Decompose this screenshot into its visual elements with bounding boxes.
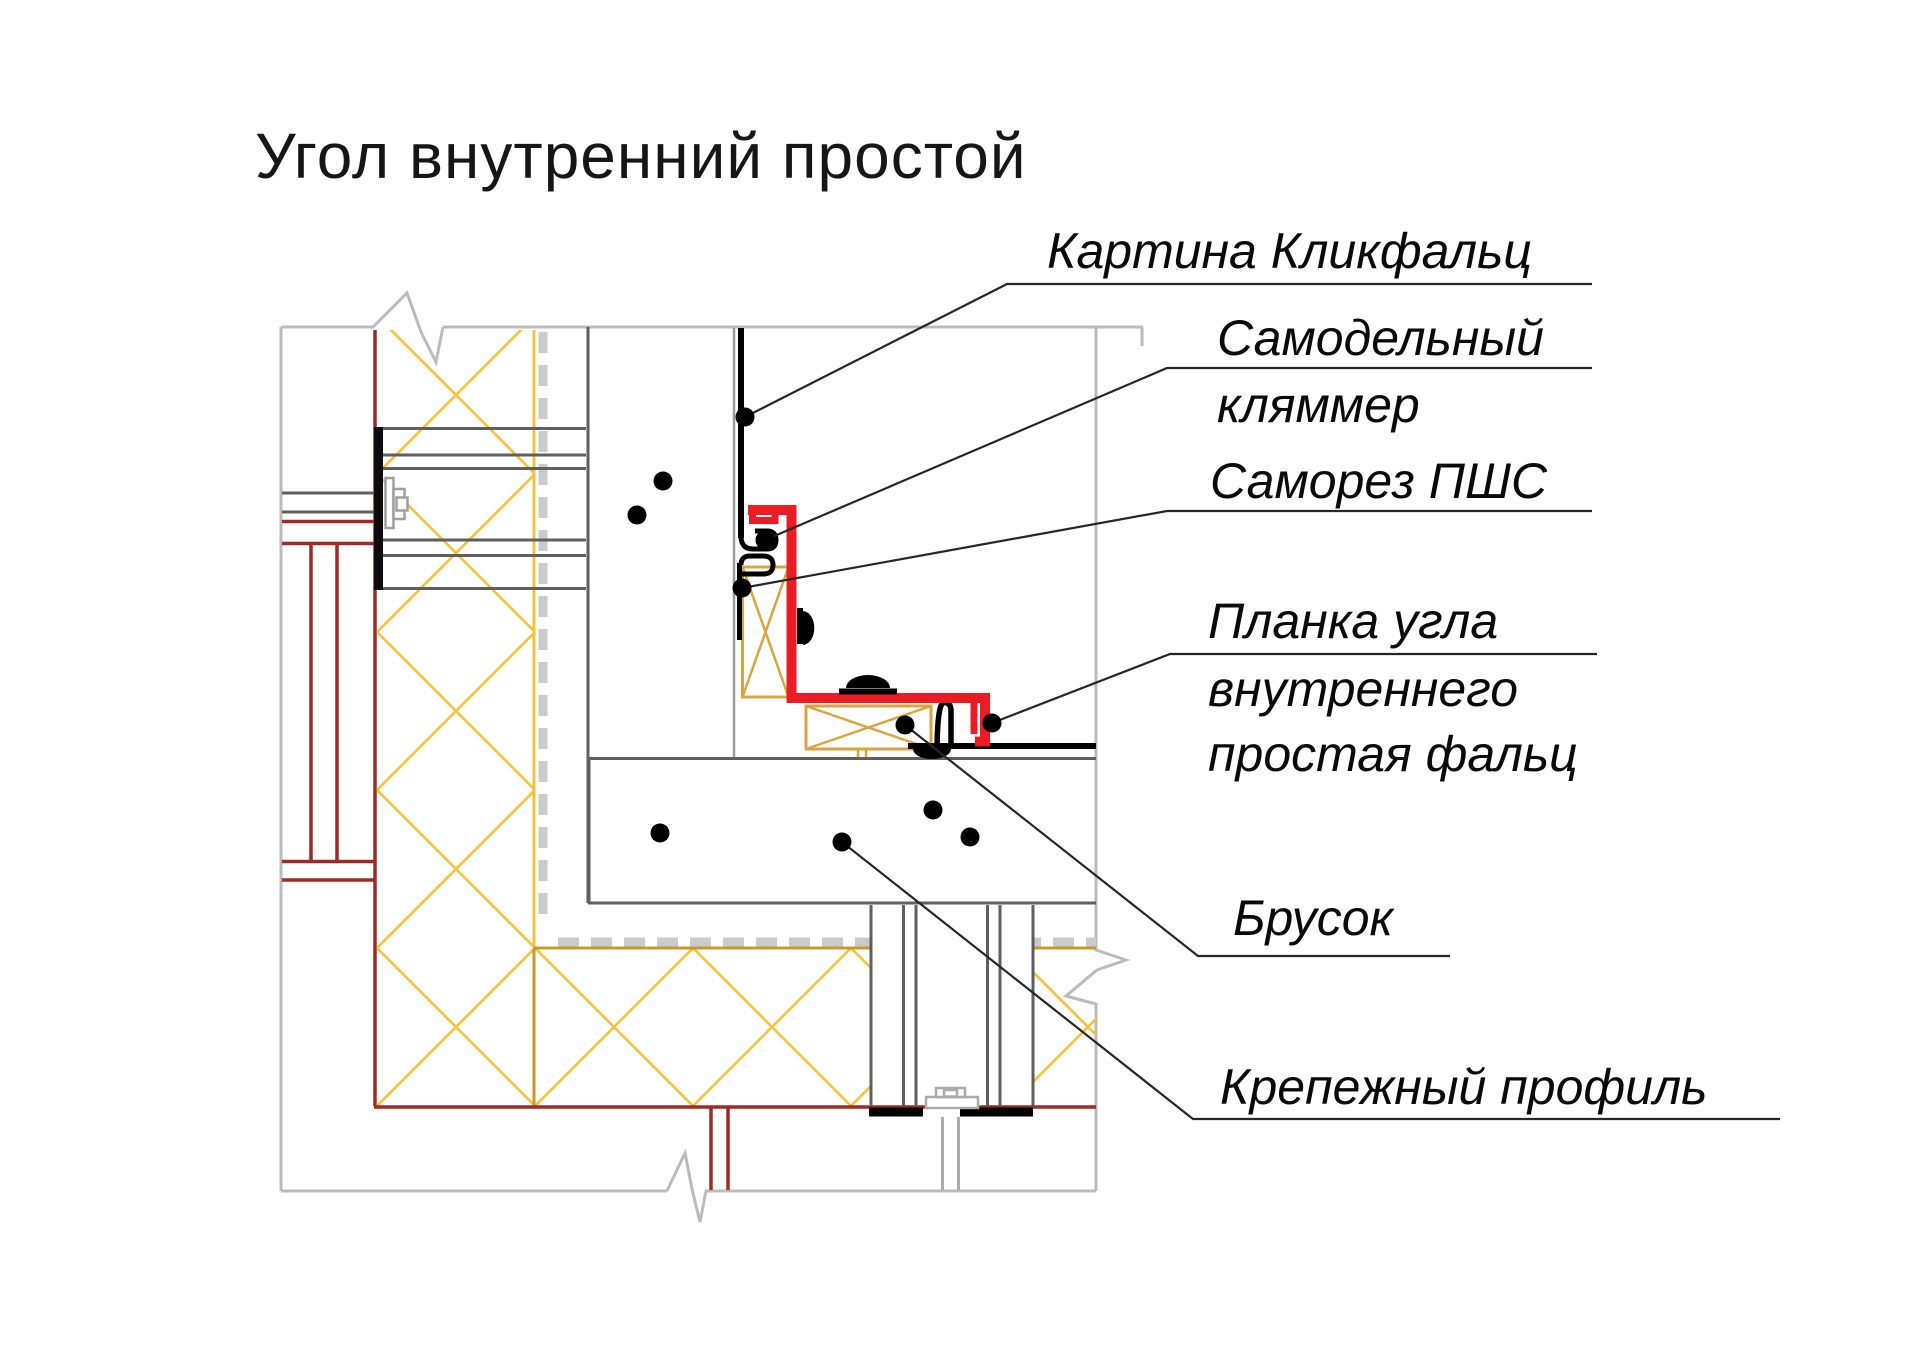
corner-detail [740, 510, 1097, 759]
label-kartina: Картина Кликфальц [1047, 223, 1532, 279]
label-planka-line2: внутреннего [1208, 661, 1518, 717]
dot-samorez [733, 579, 752, 598]
label-planka-line3: простая фальц [1208, 726, 1578, 782]
dot-plain-5 [961, 828, 980, 847]
anchor-plate [926, 1097, 978, 1108]
dot-brusok [896, 716, 915, 735]
screw-head-base-side [797, 608, 803, 644]
page-title: Угол внутренний простой [255, 120, 1027, 192]
dot-plain-3 [651, 824, 670, 843]
callout-labels: Картина Кликфальц Самодельный кляммер Са… [1047, 223, 1707, 1115]
drawing-sheet: Угол внутренний простой Картина Кликфаль… [0, 0, 1920, 1348]
dot-plain-1 [654, 472, 673, 491]
partition-red-lines [282, 522, 374, 881]
leader-samorez [742, 511, 1592, 588]
dot-plain-2 [628, 506, 647, 525]
screw-head-dome-side [803, 611, 814, 645]
label-profil: Крепежный профиль [1220, 1059, 1707, 1115]
bracket-bolt-head [397, 498, 408, 511]
label-samorez: Саморез ПШС [1210, 453, 1548, 509]
technical-drawing: Угол внутренний простой Картина Кликфаль… [0, 0, 1920, 1348]
slab-lines [282, 493, 374, 512]
insulation-hatch-left [377, 330, 534, 1106]
interior-partition [282, 493, 374, 880]
fastener-dots [628, 408, 1002, 852]
screw-head-dome-top [846, 675, 890, 688]
bracket-base-black [374, 427, 383, 590]
anchor-stem [943, 1117, 959, 1190]
anchor-notch [944, 1090, 957, 1097]
screw-head-base-top [839, 689, 897, 695]
dot-planka [983, 714, 1002, 733]
dot-kartina [736, 408, 755, 427]
dot-plain-4 [924, 801, 943, 820]
wall-face-red-bottom [374, 1107, 1096, 1190]
dot-klyammer [756, 531, 775, 550]
label-klyammer-line2: кляммер [1217, 377, 1420, 433]
dot-profil [833, 833, 852, 852]
label-planka-line1: Планка угла [1208, 593, 1498, 649]
break-mark-bottom [667, 1153, 706, 1222]
profile-mask [872, 906, 1032, 1106]
label-brusok: Брусок [1233, 890, 1395, 946]
label-klyammer-line1: Самодельный [1217, 310, 1544, 366]
